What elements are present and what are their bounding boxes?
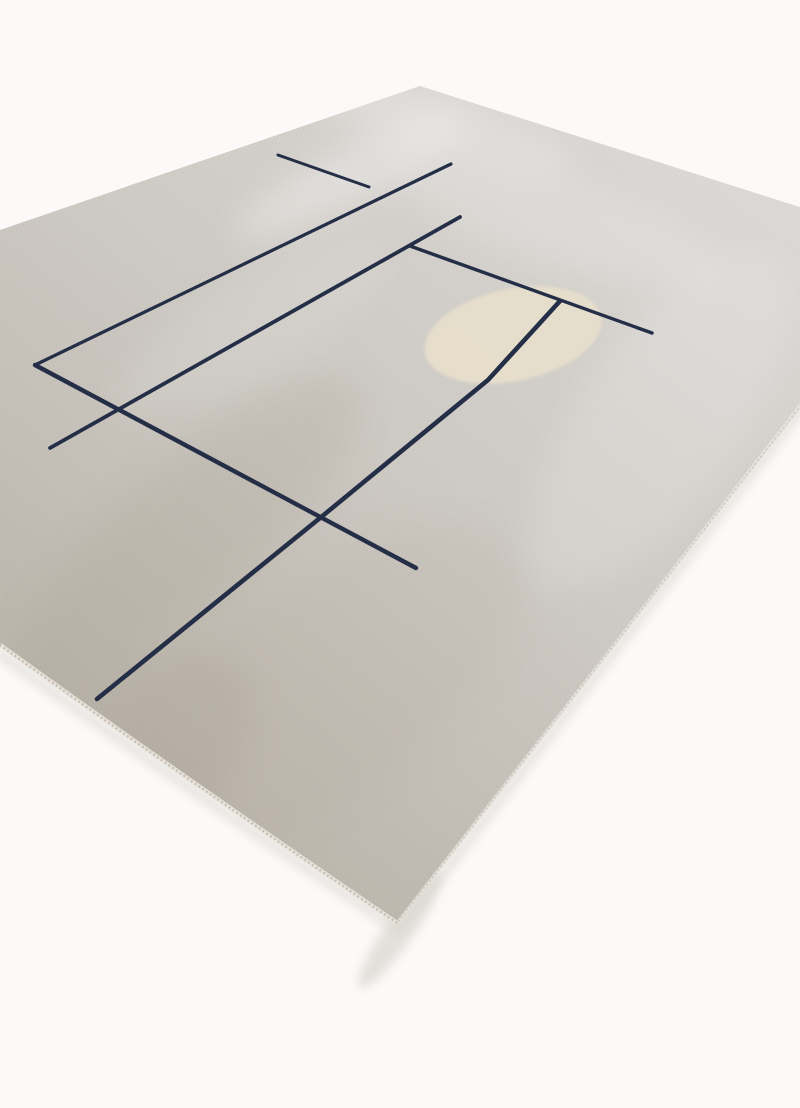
rug-photo-scene	[0, 0, 800, 1108]
rug-product-photo	[0, 0, 800, 1108]
